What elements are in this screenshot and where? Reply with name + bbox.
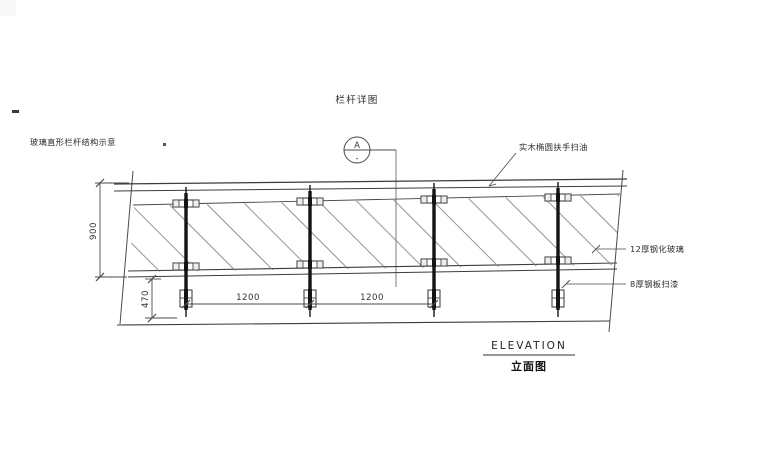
- elevation-title: ELEVATION: [491, 340, 567, 352]
- railing-elevation-drawing: 栏杆详图 玻璃直形栏杆结构示意 A -: [0, 0, 760, 457]
- section-marker-letter: A: [354, 141, 360, 151]
- scan-artifact-dash: [12, 110, 19, 113]
- page-title: 栏杆详图: [335, 94, 378, 106]
- handrail-lines: [114, 179, 627, 191]
- floor-line: [117, 321, 610, 325]
- dimension-900-label: 900: [89, 222, 99, 240]
- cad-drawing-canvas: 栏杆详图 玻璃直形栏杆结构示意 A -: [0, 0, 760, 457]
- handrail-label: 实木椭圆扶手扫油: [519, 142, 588, 152]
- dimension-1200-label-1: 1200: [236, 293, 260, 303]
- dimension-1200-label-2: 1200: [360, 293, 384, 303]
- handrail-leader: [489, 153, 516, 186]
- section-marker-number: -: [355, 154, 358, 164]
- left-note: 玻璃直形栏杆结构示意: [30, 137, 116, 147]
- note-period-dot: [163, 143, 166, 146]
- elevation-subtitle: 立面图: [511, 359, 547, 373]
- plate-leader: [562, 280, 626, 288]
- glass-label: 12厚钢化玻璃: [630, 244, 684, 254]
- plate-label: 8厚钢板扫漆: [630, 279, 679, 289]
- scan-artifact: [0, 0, 16, 16]
- dimension-470-label: 470: [141, 290, 151, 308]
- dimension-900: [95, 179, 129, 281]
